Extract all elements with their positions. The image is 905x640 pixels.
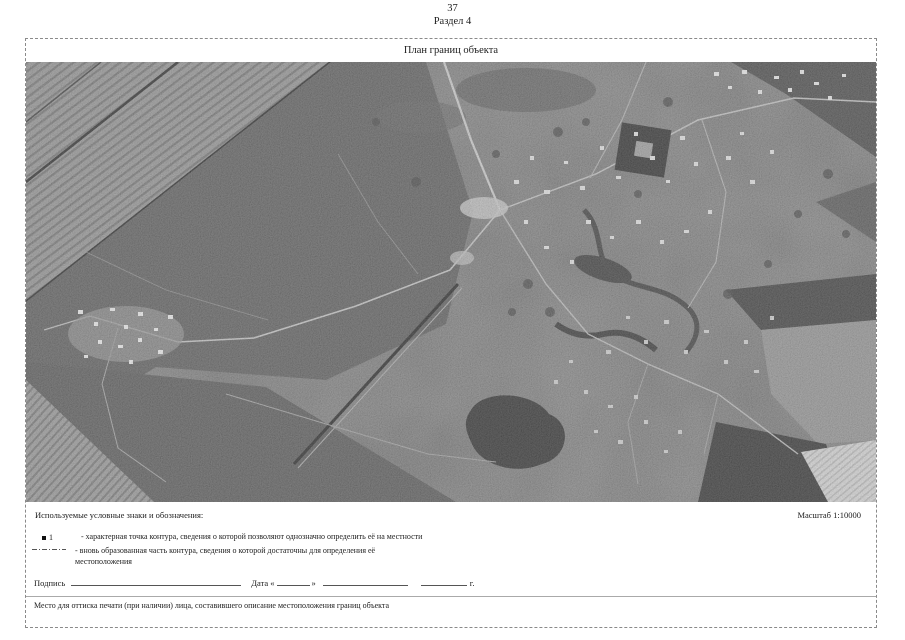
close-quote: » bbox=[312, 578, 316, 588]
plan-title: План границ объекта bbox=[26, 39, 876, 62]
stamp-note: Место для оттиска печати (при наличии) л… bbox=[34, 601, 856, 610]
page-number: 37 bbox=[0, 3, 905, 14]
plan-border-box: План границ объекта bbox=[25, 38, 877, 628]
point-number: 1 bbox=[49, 533, 53, 542]
signature-line bbox=[71, 576, 241, 586]
date-label: Дата bbox=[251, 578, 268, 588]
point-dot-icon bbox=[42, 536, 46, 540]
legend-section: Используемые условные знаки и обозначени… bbox=[26, 502, 876, 625]
separator-line bbox=[26, 596, 876, 597]
legend-item-text: - характерная точка контура, сведения о … bbox=[81, 532, 422, 543]
legend-item-new-contour-part: - вновь образованная часть контура, свед… bbox=[32, 546, 876, 568]
signature-row: ПодписьДата «»г. bbox=[34, 576, 876, 588]
legend-item-characteristic-point: 1 - характерная точка контура, сведения … bbox=[42, 532, 876, 543]
legend-heading: Используемые условные знаки и обозначени… bbox=[35, 510, 203, 520]
aerial-photo bbox=[26, 62, 876, 502]
dash-dot-line-icon bbox=[32, 546, 66, 552]
legend-item-text: - вновь образованная часть контура, свед… bbox=[75, 546, 417, 568]
document-page: 37 Раздел 4 План границ объекта bbox=[0, 0, 905, 640]
year-suffix: г. bbox=[470, 578, 475, 588]
signature-label: Подпись bbox=[34, 578, 65, 588]
scale-label: Масштаб 1:10000 bbox=[797, 510, 861, 520]
date-month-line bbox=[323, 576, 408, 586]
characteristic-point-icon: 1 bbox=[42, 532, 72, 542]
section-title: Раздел 4 bbox=[0, 16, 905, 27]
open-quote: « bbox=[270, 578, 274, 588]
date-day-line bbox=[277, 576, 310, 586]
aerial-photo-image bbox=[26, 62, 876, 502]
date-year-line bbox=[421, 576, 467, 586]
